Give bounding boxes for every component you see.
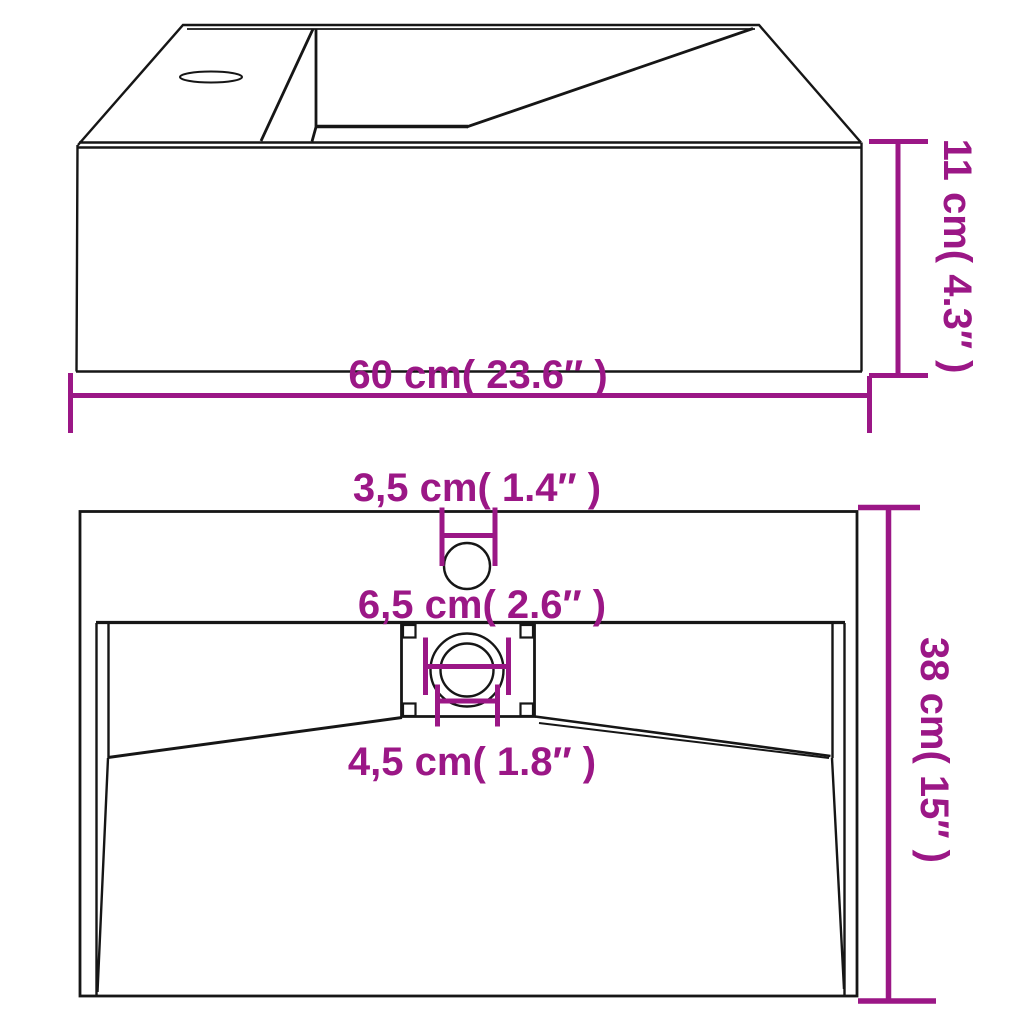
corner-tab-bottom-left [403,704,416,717]
sink-dimension-diagram: 60 cm( 23.6″ ) 11 cm( 4.3″ ) 3,5 cm( 1.4… [0,0,1024,1024]
front-view-faucet-hole-label: 3,5 cm( 1.4″ ) [353,468,601,508]
height-dimension-line [869,142,928,376]
corner-tab-bottom-right [521,704,534,717]
top-view-outline [76,25,862,372]
top-view-width-label: 60 cm( 23.6″ ) [348,355,607,395]
height-dimension-lines [869,142,928,376]
front-view-drain-recess-label: 6,5 cm( 2.6″ ) [358,585,606,625]
top-view-basin-edges [261,29,753,142]
top-view-height-label: 11 cm( 4.3″ ) [937,139,977,374]
front-view-drain-hole-label: 4,5 cm( 1.8″ ) [348,742,596,782]
front-view-depth-label: 38 cm( 15″ ) [914,637,954,863]
basin-wall-lines [97,623,845,996]
drain-inner-circle [441,644,494,697]
faucet-hole-ellipse [180,72,242,83]
diagram-linework [0,0,1024,1024]
